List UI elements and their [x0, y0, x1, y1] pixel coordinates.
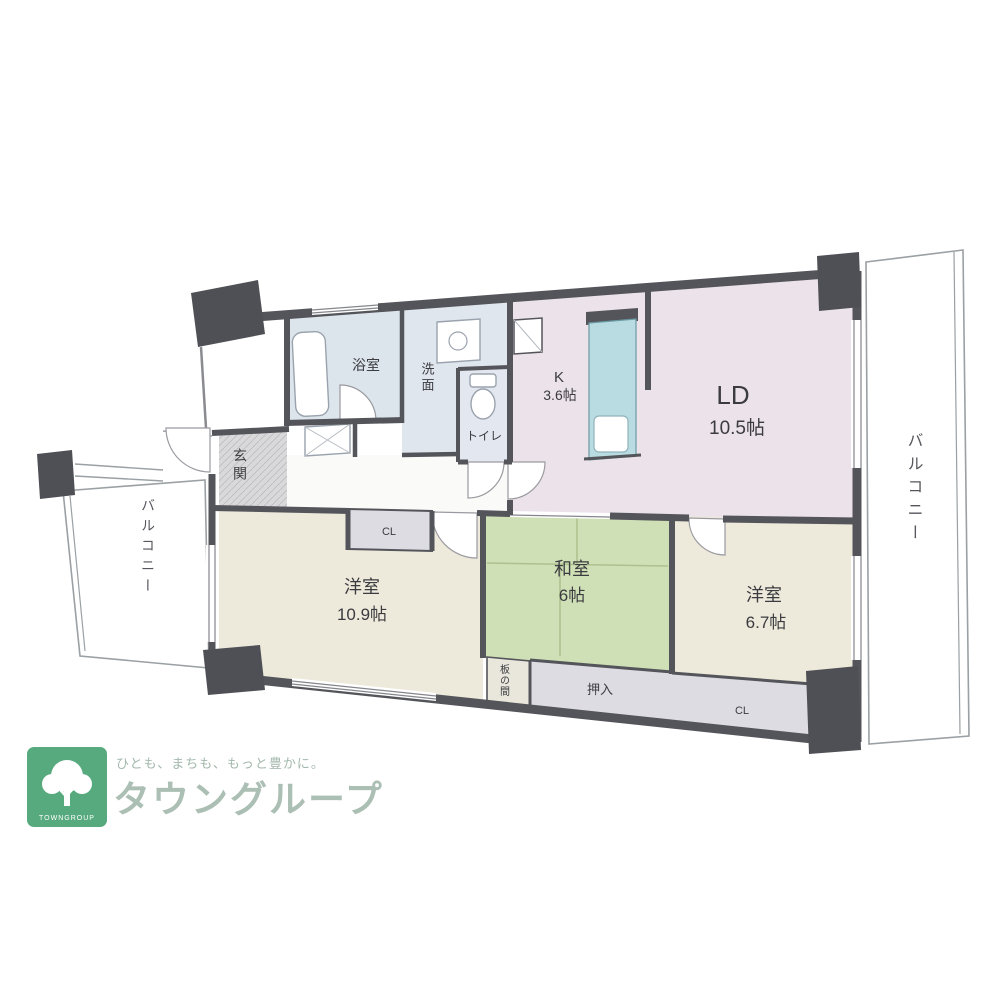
- washer-space: [305, 424, 350, 456]
- balcony-right-label: バルコニー: [905, 432, 923, 547]
- ld-label: LD: [716, 380, 749, 410]
- toilet-fixture: [470, 374, 496, 419]
- floorplan-drawing: バルコニー バルコニー: [0, 0, 1000, 1000]
- entrance-door-swing: [166, 428, 210, 472]
- washitsu-label: 和室: [554, 559, 590, 579]
- bath-label: 浴室: [352, 357, 380, 373]
- entrance-walkway-rails: [75, 464, 163, 481]
- pillar-top-left: [191, 280, 265, 347]
- logo-mark-text: TOWNGROUP: [39, 815, 95, 822]
- kitchen-label: K: [554, 369, 564, 386]
- pillar-bottom-left: [203, 645, 265, 695]
- kitchen-counter: [584, 308, 641, 460]
- closet-bottom-label: CL: [735, 705, 749, 717]
- washroom-label: 洗面: [420, 362, 435, 394]
- window-right-ld: [851, 320, 864, 468]
- western-6-7-label: 洋室: [746, 585, 782, 605]
- entrance-label: 玄関: [232, 447, 248, 484]
- town-group-logo: TOWNGROUP ひとも、まちも、もっと豊かに。 タウングループ: [27, 747, 384, 827]
- kitchen-size-label: 3.6帖: [543, 387, 576, 403]
- closet-top-label: CL: [382, 526, 396, 538]
- oshiire-label: 押入: [587, 682, 613, 697]
- pillar-bottom-right: [806, 666, 861, 754]
- kitchen-sink: [594, 416, 628, 452]
- itanoma-label: 板の間: [498, 663, 510, 697]
- bathtub: [292, 331, 329, 417]
- balcony-right: バルコニー: [866, 250, 969, 744]
- western-10-9-size-label: 10.9帖: [337, 605, 387, 624]
- pillar-left-outer: [37, 450, 75, 499]
- western-10-9-label: 洋室: [344, 577, 380, 597]
- toilet-label: トイレ: [466, 429, 502, 443]
- washitsu-size-label: 6帖: [559, 586, 585, 605]
- balcony-left-outline: [63, 480, 209, 668]
- exterior-fence-line: [201, 347, 206, 428]
- western-6-7-size-label: 6.7帖: [746, 613, 787, 632]
- balcony-left-label: バルコニー: [140, 498, 156, 598]
- ld-size-label: 10.5帖: [709, 417, 765, 439]
- refrigerator-space: [514, 318, 542, 354]
- pillar-top-right: [817, 252, 861, 311]
- entrance-floor-hatch: [219, 428, 287, 509]
- window-right-western-6-7: [851, 556, 864, 660]
- vanity-sink: [437, 319, 480, 363]
- floorplan-page: バルコニー バルコニー: [0, 0, 1000, 1000]
- window-left-wall: [206, 545, 218, 642]
- logo-tagline: ひとも、まちも、もっと豊かに。: [116, 756, 325, 771]
- logo-company-name: タウングループ: [113, 779, 384, 820]
